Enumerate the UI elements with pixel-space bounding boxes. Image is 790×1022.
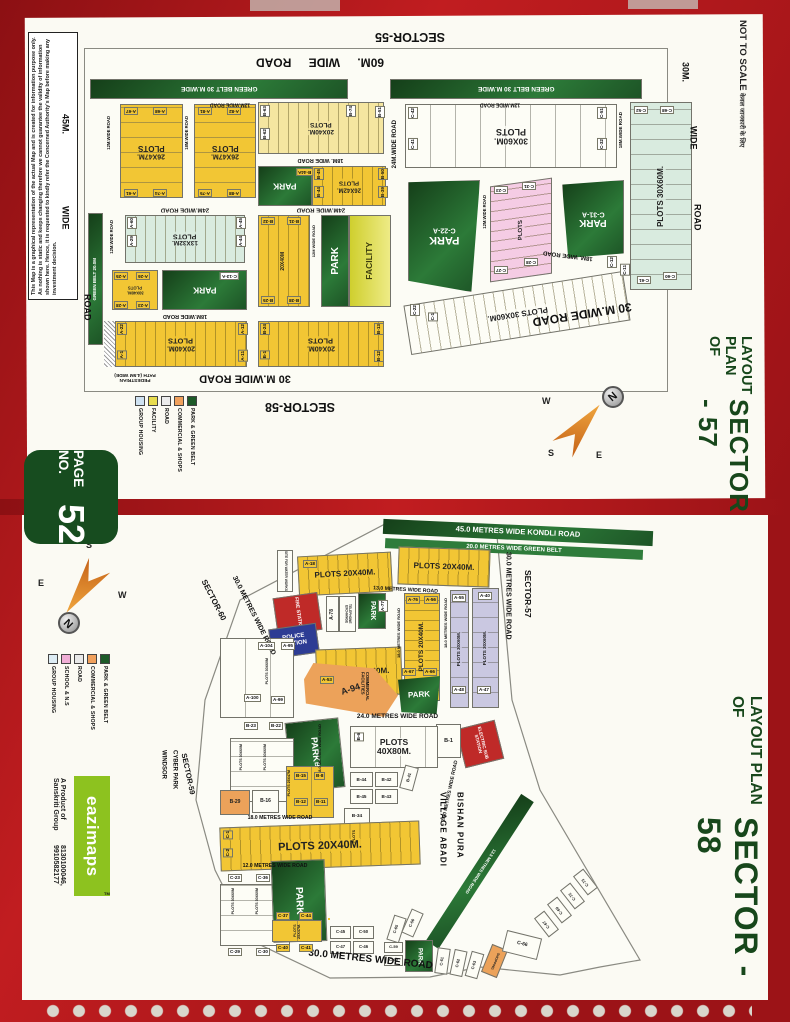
plot-tag: C-50 — [359, 930, 368, 935]
plot-block-13x32: PLOTS 13X32M. — [125, 215, 245, 263]
compass-south: S — [548, 448, 554, 458]
brand-byline2: 8130100046, 9910582177 — [52, 845, 66, 900]
legend-label: COMMERCIAL & SHOPS — [89, 666, 95, 730]
plot-size: 20X40M — [281, 252, 287, 271]
legend-swatch-road — [74, 654, 84, 664]
title-line1: LAYOUT PLAN OF — [692, 336, 754, 394]
plot-tag: C-11 — [620, 264, 630, 276]
plot-block-a-26x47: PLOTS 26X47M. — [120, 104, 183, 198]
plot-tag: B-29 — [230, 800, 241, 806]
plot-label: PLOTS — [138, 143, 165, 152]
plot-tag: A-11 — [238, 350, 248, 362]
legend-label: COMMERCIAL & SHOPS — [176, 408, 182, 472]
title-line1: LAYOUT PLAN OF — [690, 696, 764, 812]
plot-tag: A-68 — [153, 107, 167, 115]
title-sector57: LAYOUT PLAN OF SECTOR - 57 — [692, 336, 754, 502]
road-30m-wide-label: 30 M.WIDE ROAD — [170, 372, 320, 384]
plot-block-b-20x40: PLOTS 20X40M. — [258, 102, 384, 154]
plot-label: PLOTS 30X60M. — [457, 632, 462, 666]
legend-item: ROAD — [74, 654, 84, 730]
plot-tag: C-1 — [428, 312, 438, 321]
title-line2: SECTOR - 57 — [692, 399, 754, 513]
plot-tag: C-61 — [637, 276, 651, 284]
road-24m-label: 24M.WIDE ROAD — [258, 206, 384, 212]
legend-item: FACILITY — [148, 396, 158, 472]
plot-size: 26X47M. — [211, 152, 239, 160]
road-24m-label: 24.0 METRES WIDE ROAD — [350, 714, 445, 721]
park-label: PARK — [193, 285, 216, 294]
plot-tag: C-31 — [522, 182, 536, 190]
road-18m-vertical: 18M.WIDE ROAD — [185, 116, 189, 150]
eazimaps-logo: eazimaps — [74, 776, 110, 896]
plot-tag: A-56 — [424, 596, 438, 604]
plot-tag: A-53 — [320, 676, 334, 684]
plot-tag: B-51 — [375, 106, 385, 118]
plot-label: PLOTS 20X40M. — [314, 568, 375, 580]
plot-tag: C-73 — [581, 877, 590, 887]
plot-tag: A-40 — [478, 592, 492, 600]
legend-label: SCHOOL & N.S — [63, 666, 69, 706]
facility-block: FACILITY — [349, 215, 391, 307]
legend-item: COMMERCIAL & SHOPS — [87, 654, 97, 730]
plot-tag: A-18 — [303, 560, 317, 568]
plot-tag: A-44 — [236, 235, 246, 247]
title-line2: SECTOR - 58 — [690, 817, 764, 996]
legend-item: GROUP HOUSING — [135, 396, 145, 472]
plot-column-label: PLOTS 30X60M — [256, 888, 260, 914]
road-12m-vertical: 12M.WIDE ROAD — [483, 195, 487, 229]
road-30m-road: ROAD — [692, 204, 701, 231]
plot-tag: C-36 — [256, 874, 270, 882]
water-works-block: SITE FOR WATER WORKS — [277, 550, 293, 592]
hatched-strip — [104, 321, 115, 367]
pedestrian-path-label: PEDESTRIAN PATH (4.5M WIDE) — [106, 372, 164, 382]
plots-strip-label: PLOTS — [352, 830, 356, 843]
plot-tag: C-32 — [597, 138, 607, 150]
brand-byline1: A Product of Sanskriti Group — [52, 778, 66, 843]
plot-tag: B-50 — [378, 168, 388, 180]
plot-tag: C-41 — [299, 944, 313, 952]
compass-arrow-icon — [52, 555, 113, 622]
plot-cluster-label: PLOTS 25X47M — [288, 770, 292, 796]
road-18m-vertical: 18.0 METRES WIDE ROAD — [397, 608, 401, 658]
compass-north: N — [62, 616, 76, 630]
plot-tag: A-22 — [117, 323, 127, 335]
pedestrian-line2: PATH (4.5M WIDE) — [114, 372, 155, 377]
compass-east: E — [38, 578, 44, 588]
road-12m-vertical: 12M WIDE ROAD — [312, 225, 316, 257]
plot-tag: C-29 — [228, 948, 242, 956]
plot-tag: A-47 — [477, 686, 491, 694]
legend-item: COMMERCIAL & SHOPS — [174, 396, 184, 472]
windsor-label2: CYBER PARK — [171, 750, 177, 789]
compass-west: W — [118, 590, 127, 600]
plot-label: PLOTS 30X60M. — [657, 166, 666, 227]
plot-block-a-26x47: PLOTS 26X47M. — [194, 104, 256, 198]
neighbor-sector55-label: SECTOR-55 — [340, 30, 480, 43]
pedestrian-line1: PEDESTRIAN — [120, 377, 151, 382]
plot-tag: A-67 — [402, 668, 416, 676]
plot-tag: C-69 — [555, 905, 564, 915]
plot-tag: B-1 — [444, 738, 453, 744]
green-belt-strip: GREEN BELT 30 M.WIDE — [390, 79, 642, 99]
road-18m-label: 18M. WIDE ROAD — [268, 156, 373, 162]
compass-arrow-icon — [549, 394, 612, 460]
road-45m-label: 45M. — [60, 114, 69, 134]
telephone-exchange-block: TELEPHONE EXCHANGE — [339, 596, 356, 632]
plot-block-c-25x47: PLOTS 25X47M. — [272, 920, 322, 942]
plot-tag: C-30 — [256, 948, 270, 956]
plot-label: PLOTS — [310, 121, 332, 128]
compass-north: N — [606, 390, 620, 404]
plot-tag: B-25 — [261, 296, 275, 304]
plot-label: PLOTS — [496, 126, 526, 136]
plot-tag: C-60 — [663, 272, 677, 280]
not-to-scale-text: NOT TO SCALE — [737, 20, 748, 91]
plot-tag: A-29 — [127, 235, 137, 247]
legend-label: PARK & GREEN BELT — [102, 666, 108, 723]
plot-tag: C-68 — [660, 106, 674, 114]
legend-item: SCHOOL & N.S — [61, 654, 71, 730]
road-12m-label: 12.0 METRES WIDE ROAD — [226, 864, 324, 869]
legend-swatch-group-housing — [135, 396, 145, 406]
park-c22a-block: C-22-A PARK — [408, 180, 480, 292]
plot-tag: C-51 — [597, 107, 607, 119]
plot-tag: A-45 — [236, 217, 246, 229]
plot-tag: B-43 — [382, 794, 392, 799]
not-to-scale: NOT TO SCALE केवल जानकारी के लिए — [737, 20, 748, 210]
plot-size: 13X32M. — [172, 239, 198, 246]
plot-size: 20X40M. — [308, 128, 334, 135]
plot-tag: B-63 — [260, 105, 270, 117]
plot-label: PLOTS 20X40M. — [418, 622, 425, 672]
neighbor-sector57: SECTOR-57 — [523, 570, 532, 618]
plot-tag: C-2 — [223, 848, 233, 857]
road-30m-label: 30M. — [680, 62, 689, 82]
plot-tag: C-44 — [299, 912, 313, 920]
plot-size: 20X40M. — [167, 344, 195, 352]
c-cell: C-59 — [384, 942, 403, 953]
plot-tag: C-63 — [471, 960, 478, 970]
plot-tag: B-31 — [287, 217, 301, 225]
plot-tag: B-74 — [346, 105, 356, 117]
legend-label: ROAD — [163, 408, 169, 424]
park-block: PARK — [321, 215, 349, 307]
village-label2: BISHAN PURA — [455, 792, 463, 859]
park-label: PARK — [293, 887, 305, 915]
plot-tag: A-99 — [271, 696, 285, 704]
plot-tag: A-74 — [153, 189, 167, 197]
plot-tag: A-77 — [378, 600, 388, 612]
legend-swatch-commercial — [87, 654, 97, 664]
plot-tag: C-72 — [568, 891, 577, 901]
green-belt-strip: GREEN BELT 30 M.WIDE — [90, 79, 348, 99]
plot-tag: B-39 — [378, 186, 388, 198]
plot-tag: C-41 — [408, 138, 418, 150]
disclaimer-text: This Map is a graphical representation o… — [31, 37, 75, 295]
plot-tag: C-56 — [409, 918, 417, 928]
road-12m-label: 12M.WIDE ROAD — [445, 101, 555, 106]
park-c31a-block: C-31-A PARK — [562, 180, 624, 258]
a78-block: A-78 — [326, 596, 339, 632]
c-cell: C-45 — [330, 926, 351, 939]
legend-label: GROUP HOUSING — [50, 666, 56, 713]
green-belt-20m-label: GREEN BELT 20.0M — [93, 258, 98, 300]
legend-label: GROUP HOUSING — [137, 408, 143, 455]
plot-tag: A-48 — [452, 686, 466, 694]
plot-tag: B-16 — [260, 799, 271, 805]
eazimaps-logo-text: eazimaps — [82, 796, 102, 877]
title-sector58: LAYOUT PLAN OF SECTOR - 58 — [690, 696, 764, 996]
plot-tag: B-24 — [260, 323, 270, 335]
road-45m-road: ROAD — [82, 294, 91, 321]
scanned-map-page: This Map is a graphical representation o… — [0, 0, 790, 1022]
plot-tag: A-28 — [114, 301, 128, 309]
compass-rose-sector58: N S E W — [36, 540, 130, 644]
legend-item: PARK & GREEN BELT — [187, 396, 197, 472]
plot-tag: A-75 — [198, 189, 212, 197]
legend-label: ROAD — [76, 666, 82, 682]
legend-swatch-commercial — [174, 396, 184, 406]
road-18m-vertical: 18M.WIDE ROAD — [619, 112, 624, 148]
plot-tag: B-44 — [314, 186, 324, 198]
kondli-road-label: 45.0 METRES WIDE KONDLI ROAD — [456, 526, 581, 540]
plot-block-b-20x40col: 20X40M — [258, 215, 310, 307]
plot-tag: B-23 — [244, 722, 258, 730]
disclaimer-box: This Map is a graphical representation o… — [28, 32, 78, 300]
road-12m-vertical: 12M.WIDE ROAD — [110, 220, 114, 254]
c-cell: C-50 — [353, 926, 374, 939]
plot-group-20x40: PLOTS 20X40M. — [397, 546, 490, 587]
plot-size: 20X40M. — [307, 344, 335, 352]
plot-tag: C-1 — [223, 830, 233, 839]
plot-tag: A-66 — [423, 668, 437, 676]
plot-tag: B-45 — [357, 794, 367, 799]
plot-tag: B-13 — [374, 323, 384, 335]
b1-block: B-1 — [436, 724, 461, 758]
road-24m-label: 24M.WIDE ROAD — [125, 206, 245, 212]
legend-item: PARK & GREEN BELT — [100, 654, 110, 730]
facility-label: FACILITY — [365, 242, 374, 280]
not-to-scale-hindi: केवल जानकारी के लिए — [737, 93, 748, 147]
plot-tag: C-46 — [359, 945, 368, 950]
plot-size: 30X40M. — [127, 290, 144, 295]
legend-swatch-group-housing — [48, 654, 58, 664]
plot-label: PLOTS 20X40M. — [278, 838, 362, 853]
plot-tag: B-8 — [314, 772, 325, 780]
plot-label: PLOTS — [339, 179, 359, 186]
plot-tag: B-12 — [294, 798, 308, 806]
plot-tag: A-95 — [281, 642, 295, 650]
plot-tag: B-44 — [357, 777, 367, 782]
plot-tag: C-42 — [408, 107, 418, 119]
plot-block-c-30x60: PLOTS 30X60M. — [405, 104, 617, 168]
legend-sector57: GROUP HOUSING FACILITY ROAD COMMERCIAL &… — [135, 396, 197, 472]
plot-tag: C-23 — [494, 186, 508, 194]
trademark-symbol: TM — [104, 892, 110, 896]
plot-tag: B-42 — [382, 777, 392, 782]
brand-byline: A Product of Sanskriti Group 8130100046,… — [52, 778, 66, 900]
water-works-label: SITE FOR WATER WORKS — [283, 551, 287, 591]
b-cell: B-44 — [350, 772, 373, 787]
road-30m-wide: WIDE — [688, 126, 697, 150]
plot-label: PLOTS 30X60M. — [483, 631, 488, 665]
b-cell: B-45 — [350, 789, 373, 804]
plot-tag: A-61 — [124, 189, 138, 197]
compass-east: E — [596, 450, 602, 460]
legend-swatch-park — [100, 654, 110, 664]
plot-tag: A-1 — [117, 350, 127, 359]
plot-tag: B-62 — [260, 128, 270, 140]
shopping-label: SHOPPING — [489, 952, 499, 970]
road-30m-right: 30.0 METRES WIDE ROAD — [504, 552, 511, 640]
plot-tag: A-81 — [198, 107, 212, 115]
plot-label: PLOTS 25X47M. — [293, 921, 301, 941]
legend-item: GROUP HOUSING — [48, 654, 58, 730]
plot-column-label: PLOTS 30X60M — [266, 658, 270, 684]
plot-tag: C-28 — [524, 258, 538, 266]
plot-tag: B-45 — [314, 168, 324, 180]
plot-column-label: PLOTS 30X60M — [264, 744, 268, 770]
plot-tag: C-13-A — [220, 272, 239, 280]
plot-tag: A-55 — [452, 594, 466, 602]
b-cell: B-42 — [375, 772, 398, 787]
plot-tag: C-65 — [393, 924, 400, 934]
plot-label: PLOTS — [212, 143, 239, 152]
plot-tag: B-15 — [294, 772, 308, 780]
plot-tag: C-22 — [410, 304, 420, 316]
plot-label: PLOTS — [518, 220, 525, 241]
tape-mark — [628, 0, 698, 9]
commercial-facilities-label: COMMERCIAL FACILITIES — [360, 672, 369, 714]
electric-substation-label: ELECTRIC SUB STATION — [471, 726, 489, 761]
plot-tag: A-104 — [258, 642, 275, 650]
plot-size: 40X80M. — [377, 747, 411, 756]
plot-tag: A-25 — [114, 272, 128, 280]
road-18m-label: 18.0 METRES WIDE ROAD — [228, 816, 332, 821]
plot-tag: B-44A — [296, 168, 313, 176]
plot-cells-cluster — [220, 638, 294, 718]
plot-tag: C-27 — [494, 266, 508, 274]
plot-tag: C-23 — [228, 874, 242, 882]
plot-block-20x40: PLOTS 20X40M. — [258, 321, 384, 367]
telephone-exchange-label: TELEPHONE EXCHANGE — [344, 597, 351, 631]
page-badge-number: 52 — [50, 504, 92, 544]
legend-item: ROAD — [161, 396, 171, 472]
red-divider — [0, 499, 790, 515]
legend-swatch-school — [61, 654, 71, 664]
plot-tag: B-11 — [314, 798, 328, 806]
plot-tag: C-47 — [336, 945, 345, 950]
plot-tag: A-60 — [127, 217, 137, 229]
compass-rose-sector57: N W S E — [540, 386, 632, 466]
legend-label: FACILITY — [150, 408, 156, 433]
tape-mark — [250, 0, 340, 11]
plot-label: PLOTS 20X40M. — [413, 562, 474, 573]
park-block: PARK — [398, 676, 440, 714]
legend-swatch-park — [187, 396, 197, 406]
neighbor-sector58-label: SECTOR-58 — [245, 400, 355, 413]
spacer — [328, 918, 330, 920]
plot-tag: C-37 — [276, 912, 290, 920]
plot-tag: A-26 — [136, 272, 150, 280]
plot-tag: A-76 — [406, 596, 420, 604]
plot-tag: B-6 — [354, 732, 364, 741]
park-label: PARK — [368, 601, 376, 620]
legend-sector58: GROUP HOUSING SCHOOL & N.S ROAD COMMERCI… — [48, 654, 110, 730]
page-number-badge: PAGE NO. 52 — [24, 450, 118, 544]
road-12m-vertical: 12M.WIDE ROAD — [107, 116, 111, 150]
plot-tag: B-12 — [374, 350, 384, 362]
plot-tag: B-34 — [352, 814, 362, 819]
plot-tag: C-52 — [634, 106, 648, 114]
legend-swatch-facility — [148, 396, 158, 406]
b-cell: B-43 — [375, 789, 398, 804]
park-label: PARK — [429, 234, 459, 246]
plot-size: 26X47M. — [137, 152, 165, 160]
plot-tag: B-1 — [260, 350, 270, 359]
plot-tag: A-23 — [136, 301, 150, 309]
plot-tag: A-67 — [124, 107, 138, 115]
plot-tag: C-12 — [607, 256, 617, 268]
plot-tag: C-59 — [389, 945, 398, 949]
b29-block: B-29 — [220, 790, 250, 815]
park-label: PARK — [579, 217, 607, 228]
road-60m-label: 60M. WIDE ROAD — [170, 56, 470, 69]
road-24m-vertical: 24M.WIDE ROAD — [392, 120, 398, 168]
plot-tag: C-45 — [336, 930, 345, 935]
plot-tag: B-41 — [406, 773, 413, 783]
plot-tag: A-100 — [244, 694, 261, 702]
legend-label: PARK & GREEN BELT — [189, 408, 195, 465]
plot-size: 30X60M. — [494, 136, 528, 145]
park-id: C-22-A — [433, 226, 456, 234]
plot-column-label: PLOTS 30X60M — [240, 744, 244, 770]
park-label: PARK — [330, 247, 341, 275]
road-18m-vertical: 18.0 METRES WIDE ROAD — [318, 724, 322, 774]
plot-column-label: PLOTS 30X60M — [232, 888, 236, 914]
road-18m-vertical: 18.0 METRES WIDE ROAD — [444, 598, 448, 648]
plot-tag: A-88 — [227, 189, 241, 197]
plot-tag: A-78 — [330, 609, 336, 620]
road-45m-wide: WIDE — [60, 206, 69, 230]
plot-size: 26X42M. — [337, 186, 361, 193]
plot-tag: A-82 — [227, 107, 241, 115]
plot-block-c-30x60col: PLOTS 30X60M. — [630, 102, 692, 290]
plot-tag: A-12 — [238, 323, 248, 335]
windsor-label1: WINDSOR — [160, 750, 166, 779]
green-belt-20m: GREEN BELT 20.0M — [88, 213, 103, 345]
plot-tag: C-62 — [455, 958, 461, 967]
plot-tag: B-22 — [269, 722, 283, 730]
road-18m-label: 18M.WIDE ROAD — [125, 312, 245, 318]
page-badge-label: PAGE NO. — [56, 450, 86, 496]
plot-block-20x40: PLOTS 20X40M. — [115, 321, 247, 367]
b16-block: B-16 — [252, 790, 279, 813]
green-belt-label: GREEN BELT 30 M.WIDE — [478, 85, 554, 92]
legend-swatch-road — [161, 396, 171, 406]
park-label: PARK — [408, 690, 431, 700]
compass-west: W — [542, 396, 551, 406]
park-label: PARK — [273, 181, 296, 190]
plot-tag: C-67 — [542, 919, 551, 929]
green-belt-label: GREEN BELT 30 M.WIDE — [181, 85, 257, 92]
plot-tag: C-40 — [276, 944, 290, 952]
plot-tag: B-38 — [287, 296, 301, 304]
commercial-id: A-94 — [340, 682, 362, 697]
plot-tag: B-32 — [261, 217, 275, 225]
plot-tag: C-66 — [516, 941, 528, 949]
